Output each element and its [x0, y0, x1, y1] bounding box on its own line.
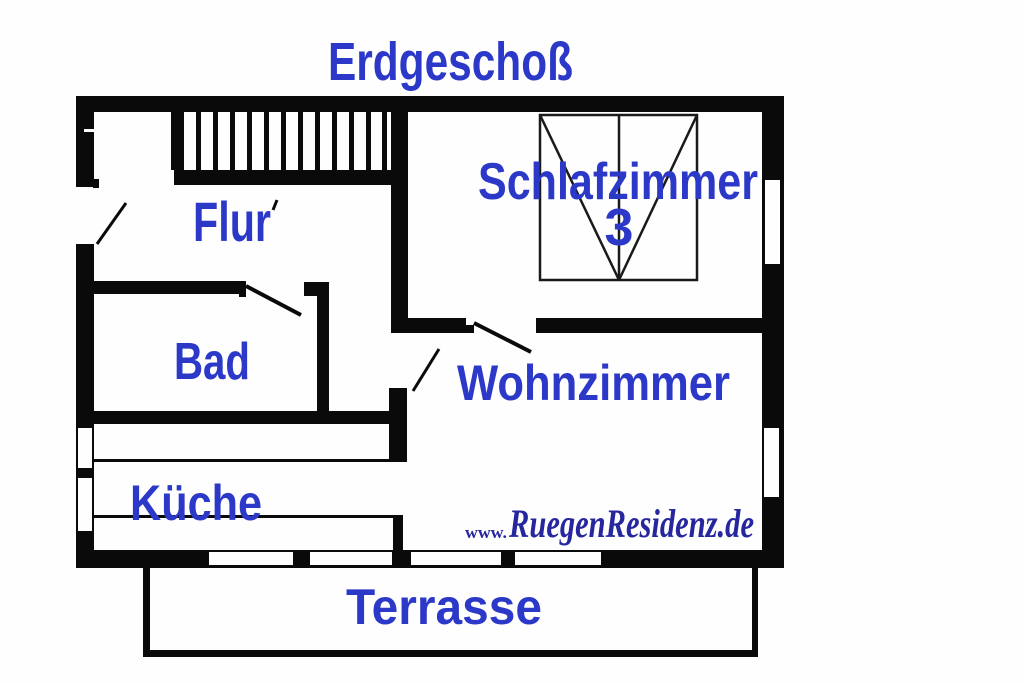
svg-text:www.: www.: [465, 523, 507, 542]
svg-text:3: 3: [605, 199, 634, 257]
svg-text:Bad: Bad: [174, 333, 250, 391]
svg-text:Terrasse: Terrasse: [346, 579, 542, 635]
svg-text:Flur: Flur: [193, 190, 271, 253]
svg-text:Küche: Küche: [130, 475, 262, 531]
svg-text:RuegenResidenz.de: RuegenResidenz.de: [508, 501, 754, 546]
svg-text:Wohnzimmer: Wohnzimmer: [457, 355, 730, 411]
svg-text:Erdgeschoß: Erdgeschoß: [328, 32, 573, 92]
